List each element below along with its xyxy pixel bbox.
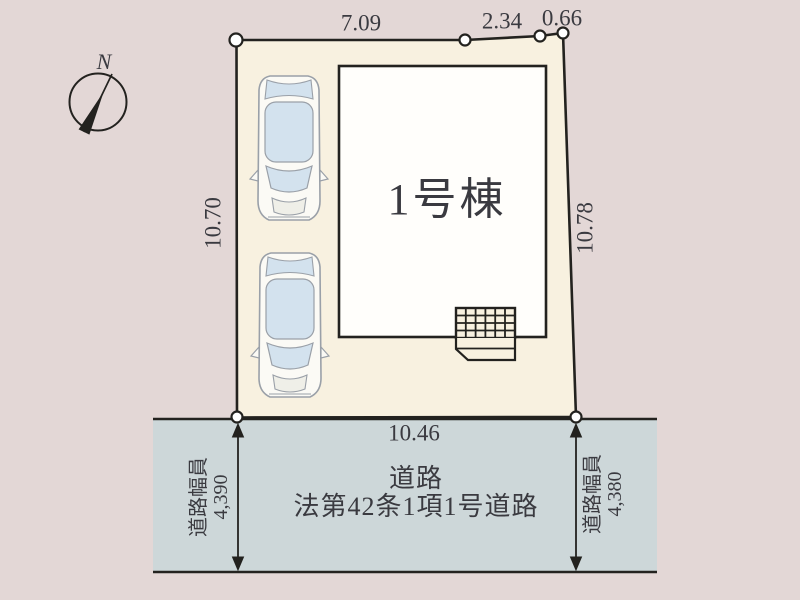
road-width-right-value: 4,380 bbox=[604, 454, 626, 534]
site-plan: N 7.09 2.34 0.66 10.70 10.78 10.46 1号棟 道… bbox=[0, 0, 800, 600]
north-label: N bbox=[97, 51, 112, 73]
road-name-line2: 法第42条1項1号道路 bbox=[293, 494, 538, 520]
compass-icon bbox=[70, 74, 127, 135]
car-icon bbox=[250, 76, 328, 220]
dimension-top-2: 2.34 bbox=[482, 10, 522, 33]
road-width-right: 道路幅員 4,380 bbox=[582, 454, 626, 534]
dimension-top-3: 0.66 bbox=[542, 7, 582, 30]
building-label: 1号棟 bbox=[388, 178, 507, 222]
road-width-left-label: 道路幅員 bbox=[188, 457, 210, 537]
vertex-marker bbox=[232, 412, 243, 423]
road-name-line1: 道路 bbox=[389, 466, 443, 492]
vertex-marker bbox=[460, 35, 471, 46]
dimension-bottom: 10.46 bbox=[388, 422, 440, 445]
entrance-grid-icon bbox=[456, 308, 515, 338]
vertex-marker bbox=[571, 412, 582, 423]
car-icon bbox=[251, 253, 329, 397]
dimension-top-1: 7.09 bbox=[341, 12, 381, 35]
vertex-marker bbox=[230, 34, 243, 47]
road-width-left: 道路幅員 4,390 bbox=[188, 457, 232, 537]
porch-step bbox=[456, 338, 515, 360]
road-width-left-value: 4,390 bbox=[210, 457, 232, 537]
dimension-right: 10.78 bbox=[574, 202, 597, 254]
dimension-left: 10.70 bbox=[202, 197, 225, 249]
road-width-right-label: 道路幅員 bbox=[582, 454, 604, 534]
vertex-marker bbox=[535, 31, 546, 42]
